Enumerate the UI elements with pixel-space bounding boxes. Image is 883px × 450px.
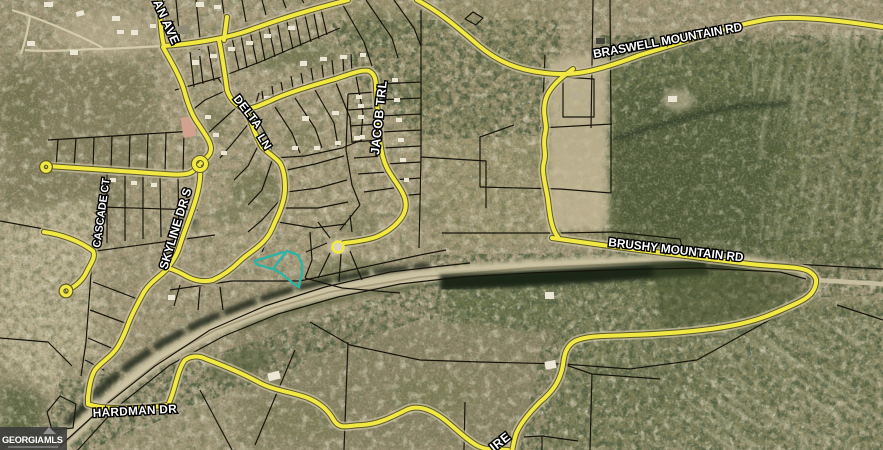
svg-text:MLS: MLS — [44, 435, 63, 445]
svg-text:GEORGIA: GEORGIA — [2, 435, 44, 445]
